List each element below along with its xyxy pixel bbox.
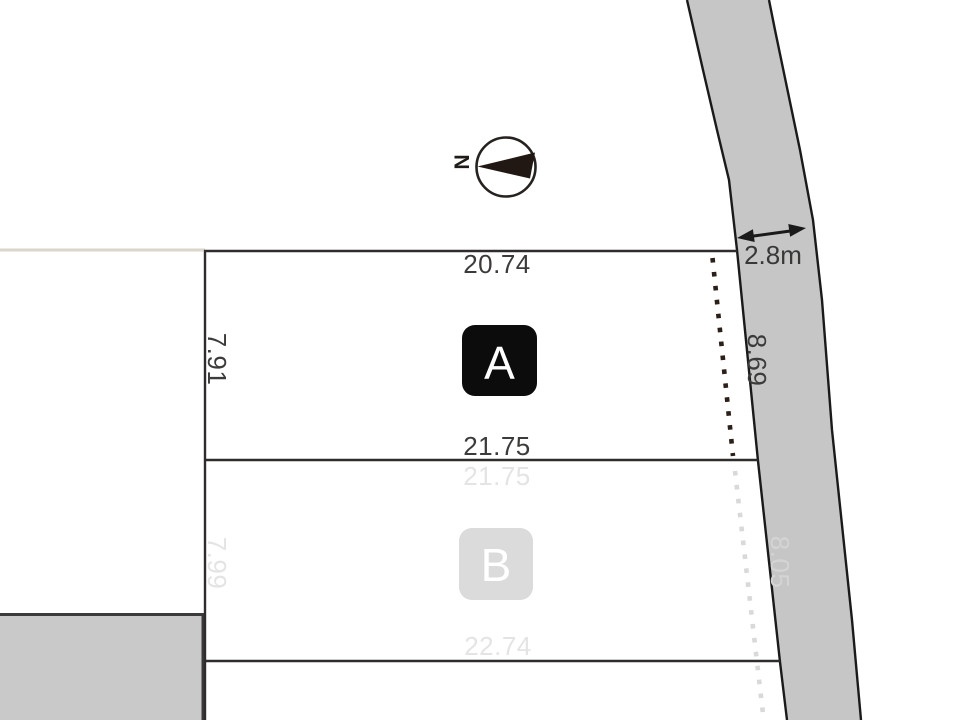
- plot-a-dim-top: 20.74: [463, 249, 531, 279]
- plot-b-dim-bottom: 22.74: [464, 631, 532, 661]
- site-plan: N 2.8m 20.74 7.91 21.75 8.69 21.75 7.99 …: [0, 0, 960, 720]
- north-compass: N: [450, 138, 536, 197]
- plot-a-dim-road-side: 8.69: [742, 334, 772, 387]
- plot-b-dim-left: 7.99: [202, 537, 232, 590]
- plot-b-dim-top: 21.75: [463, 461, 531, 491]
- adjacent-block: [0, 614, 204, 720]
- plot-a-dim-bottom: 21.75: [463, 431, 531, 461]
- plot-a-badge[interactable]: A: [462, 325, 537, 396]
- compass-north-label: N: [450, 154, 473, 169]
- plot-b-dim-road-side: 8.05: [765, 536, 795, 589]
- road-width-label: 2.8m: [744, 240, 802, 270]
- site-plan-svg: N 2.8m 20.74 7.91 21.75 8.69 21.75 7.99 …: [0, 0, 960, 720]
- plot-b-setback-dotted-line: [735, 471, 763, 714]
- plot-a-setback-dotted-line: [713, 258, 734, 456]
- plot-a-badge-label: A: [484, 337, 515, 389]
- plot-b-badge[interactable]: B: [459, 528, 533, 600]
- plot-b-badge-label: B: [481, 539, 512, 591]
- plot-a-dim-left: 7.91: [202, 333, 232, 386]
